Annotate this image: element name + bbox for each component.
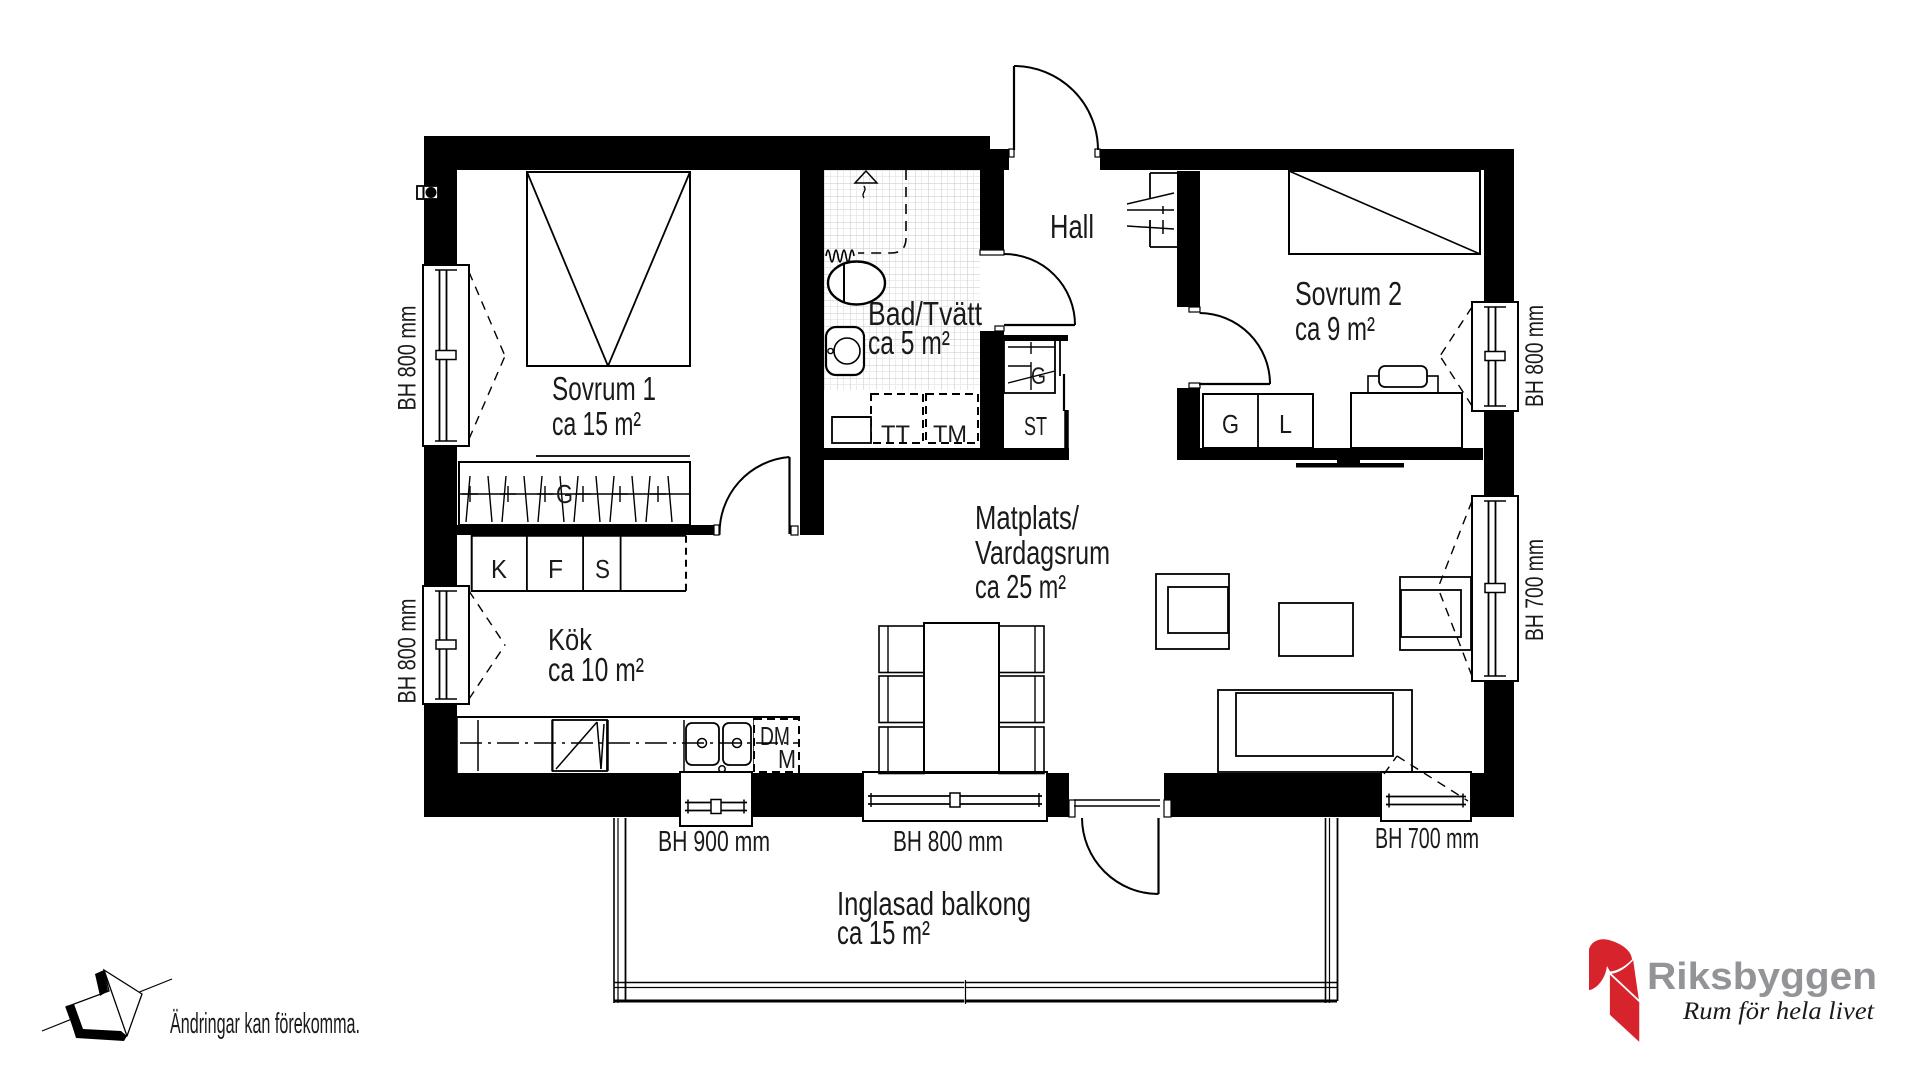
svg-text:ca 10 m²: ca 10 m²	[548, 651, 644, 688]
svg-text:Sovrum 2: Sovrum 2	[1295, 275, 1402, 312]
svg-text:Ändringar kan förekomma.: Ändringar kan förekomma.	[170, 1008, 360, 1040]
svg-text:S: S	[595, 554, 610, 584]
svg-text:Sovrum 1: Sovrum 1	[552, 370, 656, 407]
svg-text:Riksbyggen: Riksbyggen	[1647, 956, 1877, 998]
svg-text:ST: ST	[1024, 411, 1047, 441]
svg-text:Rum för hela livet: Rum för hela livet	[1682, 998, 1875, 1025]
svg-text:Hall: Hall	[1050, 208, 1094, 245]
svg-text:BH 800 mm: BH 800 mm	[394, 306, 422, 411]
svg-text:TT: TT	[881, 421, 910, 448]
svg-text:BH 700 mm: BH 700 mm	[1521, 539, 1549, 641]
svg-text:K: K	[491, 554, 508, 584]
svg-text:TM: TM	[933, 421, 967, 448]
svg-text:BH 800 mm: BH 800 mm	[1521, 305, 1549, 407]
svg-text:ca 15 m²: ca 15 m²	[837, 914, 930, 951]
svg-text:G: G	[1222, 409, 1239, 439]
svg-text:BH 900 mm: BH 900 mm	[658, 826, 770, 858]
svg-text:G: G	[556, 479, 573, 509]
svg-text:ca 5 m²: ca 5 m²	[868, 324, 950, 361]
svg-text:F: F	[548, 554, 563, 584]
svg-text:ca 15 m²: ca 15 m²	[552, 405, 641, 442]
svg-text:ca 9 m²: ca 9 m²	[1295, 310, 1375, 347]
svg-text:BH 800 mm: BH 800 mm	[893, 826, 1003, 858]
svg-text:ca 25 m²: ca 25 m²	[975, 568, 1066, 605]
svg-text:BH 700 mm: BH 700 mm	[1375, 823, 1479, 855]
svg-text:Matplats/: Matplats/	[975, 499, 1080, 536]
svg-text:Vardagsrum: Vardagsrum	[975, 534, 1110, 571]
svg-text:M: M	[778, 744, 796, 774]
svg-text:BH 800 mm: BH 800 mm	[394, 599, 422, 704]
svg-text:G: G	[1031, 363, 1046, 390]
svg-text:L: L	[1279, 409, 1292, 439]
